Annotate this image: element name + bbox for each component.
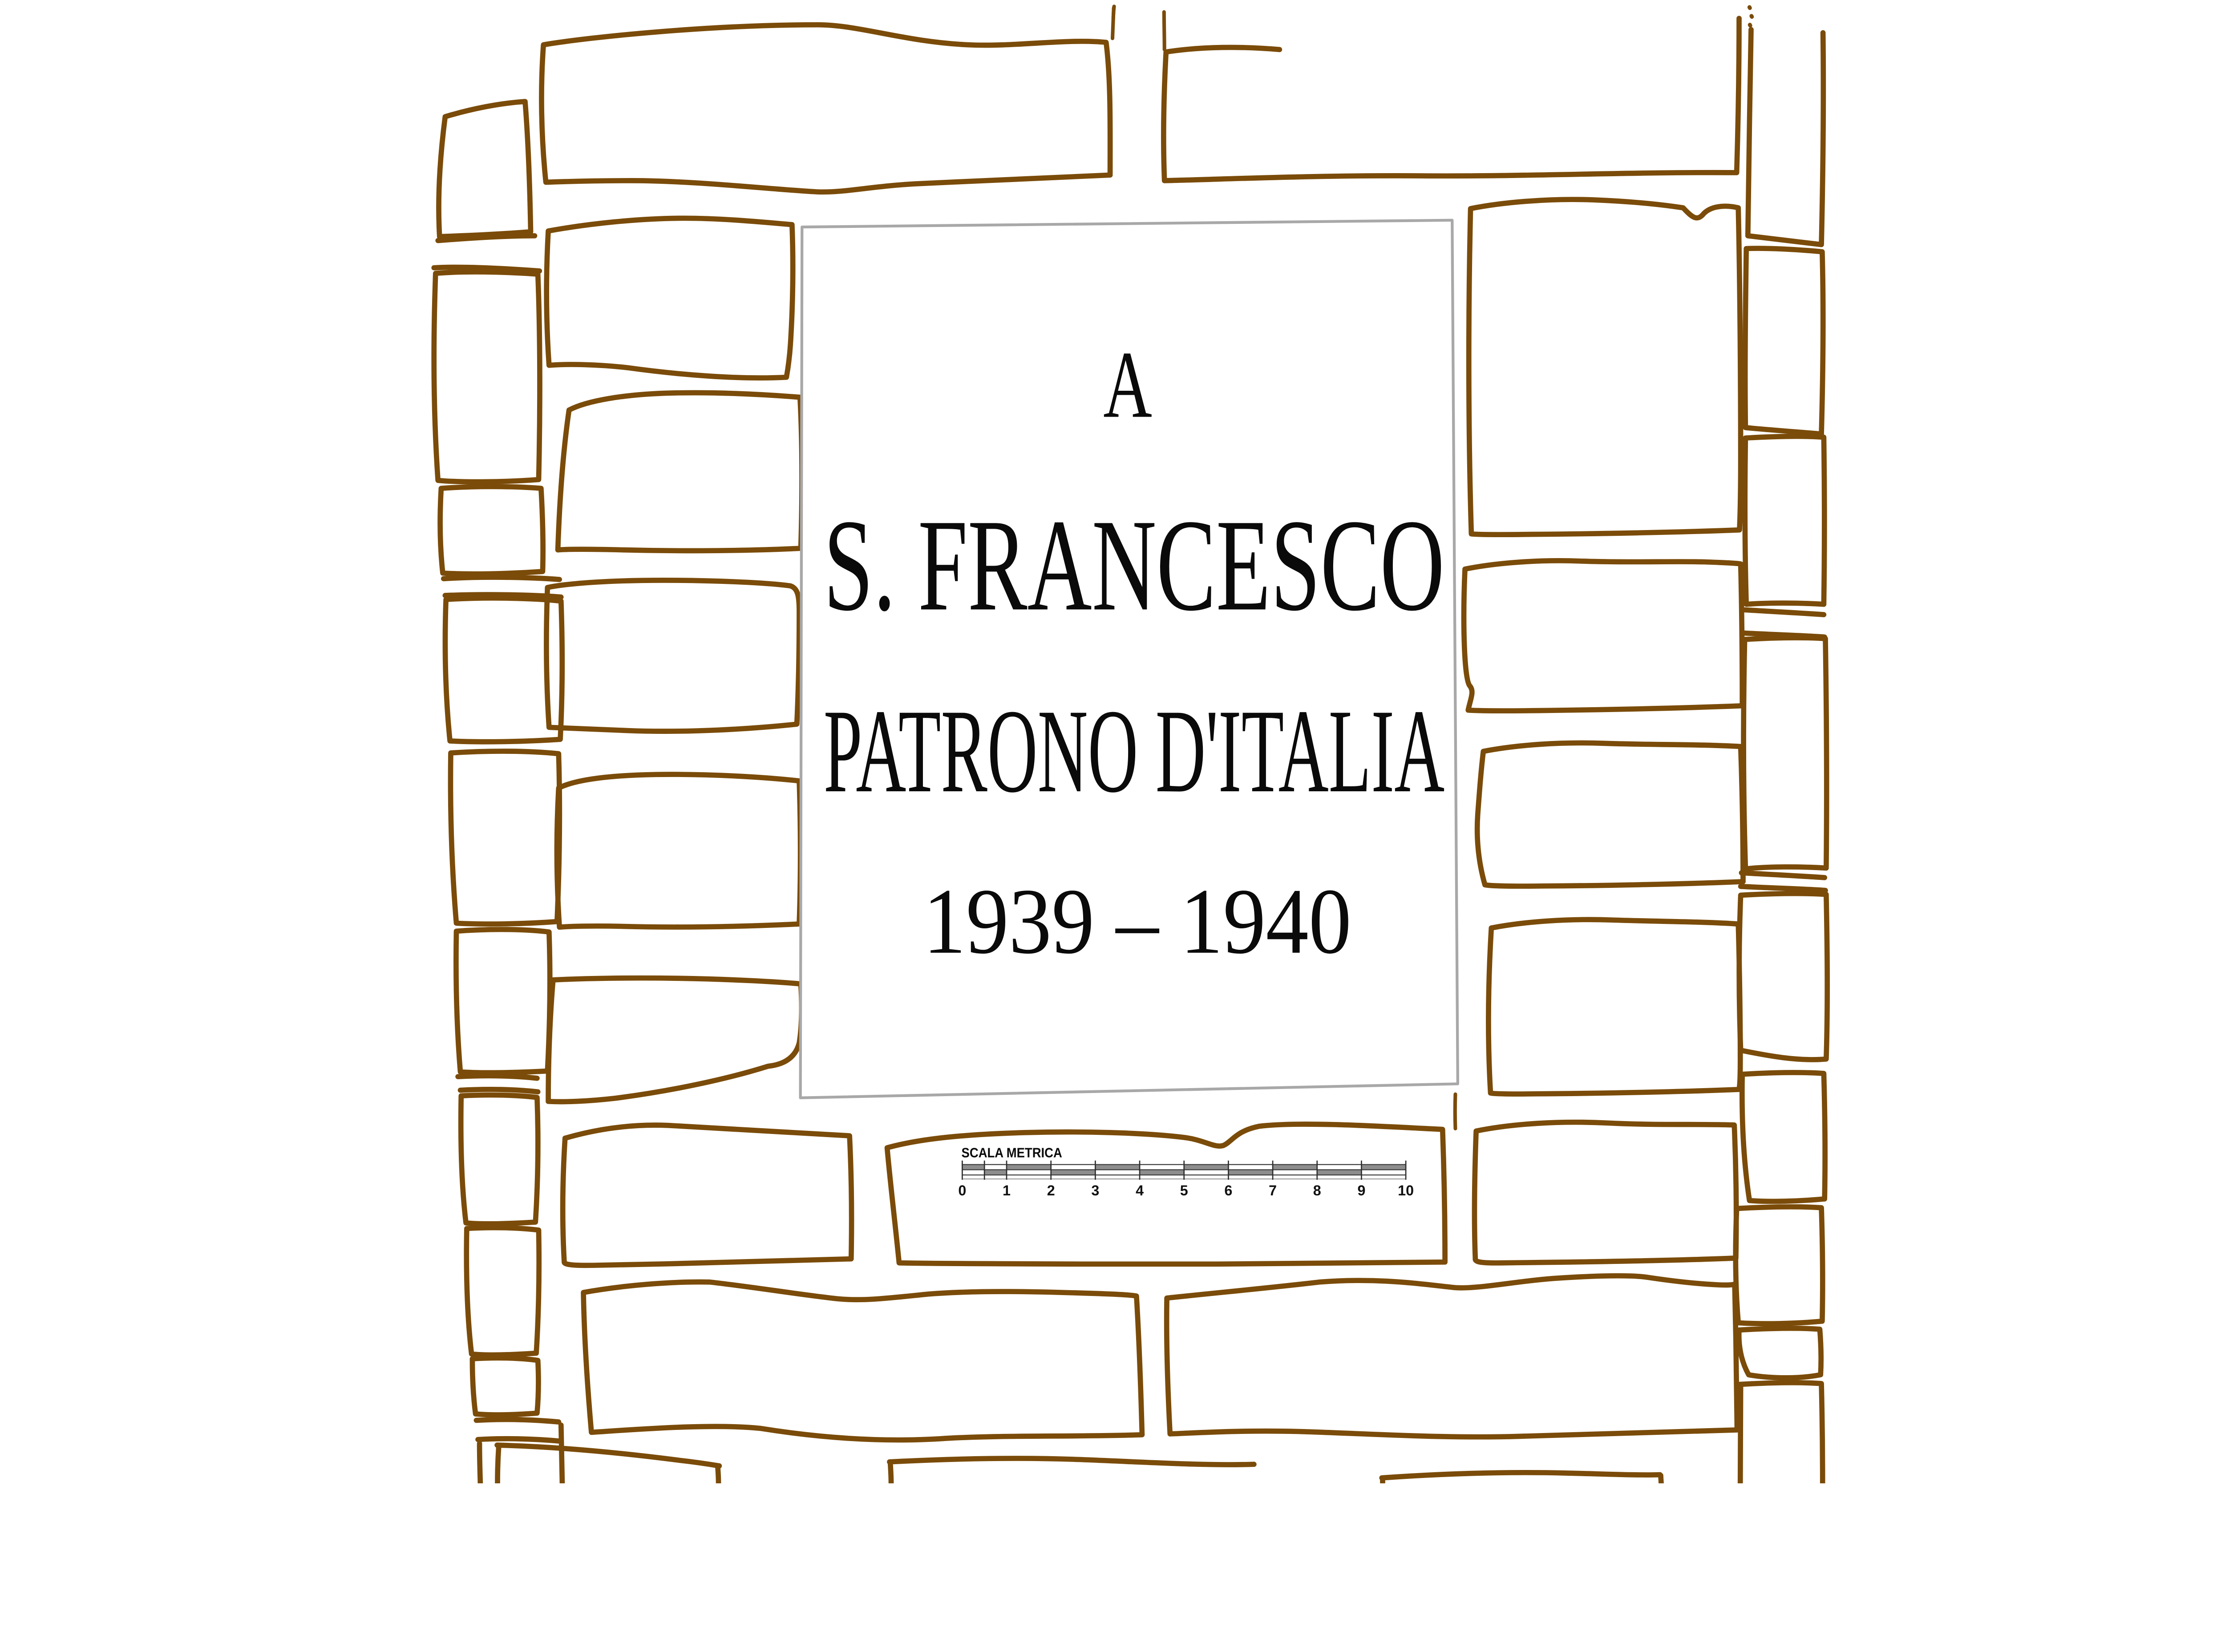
scale-bar-segment xyxy=(1140,1170,1184,1175)
scale-tick-label: 7 xyxy=(1269,1182,1277,1199)
scale-bar-segment xyxy=(1361,1165,1406,1170)
scale-tick-label: 5 xyxy=(1180,1182,1188,1199)
stone-joint-line xyxy=(1455,1094,1456,1129)
scale-tick-label: 0 xyxy=(958,1182,966,1199)
scale-tick-label: 4 xyxy=(1136,1182,1144,1199)
plaque-line-years: 1939 – 1940 xyxy=(923,869,1351,973)
scale-tick-label: 2 xyxy=(1047,1182,1055,1199)
scale-tick-label: 8 xyxy=(1313,1182,1321,1199)
scale-tick-label: 9 xyxy=(1357,1182,1365,1199)
scale-bar-segment xyxy=(962,1165,984,1170)
scale-bar-segment xyxy=(1051,1170,1096,1175)
scale-bar-segment xyxy=(1273,1165,1317,1170)
scale-bar-segment xyxy=(1095,1165,1140,1170)
scale-tick-label: 10 xyxy=(1398,1182,1414,1199)
scale-tick-label: 3 xyxy=(1091,1182,1099,1199)
stone-wall-plaque-drawing: A S. FRANCESCO PATRONO D'ITALIA 1939 – 1… xyxy=(0,0,2225,1483)
scale-tick-label: 1 xyxy=(1003,1182,1011,1199)
scale-title: SCALA METRICA xyxy=(962,1146,1062,1161)
plaque: A S. FRANCESCO PATRONO D'ITALIA 1939 – 1… xyxy=(801,220,1458,1098)
plaque-line-a: A xyxy=(1103,332,1152,438)
scale-bar-segment xyxy=(1228,1170,1273,1175)
stray-pen-mark xyxy=(1113,6,1114,18)
scale-bar-segment xyxy=(1317,1170,1362,1175)
scale-bar-segment xyxy=(1007,1165,1051,1170)
plaque-line-patron: PATRONO D'ITALIA xyxy=(824,685,1444,818)
stone-joint-line xyxy=(1164,12,1165,49)
scale-bar-segment xyxy=(1184,1165,1229,1170)
plaque-line-dedication: S. FRANCESCO xyxy=(824,492,1444,638)
scale-tick-label: 6 xyxy=(1224,1182,1232,1199)
scale-bar-segment xyxy=(984,1170,1007,1175)
